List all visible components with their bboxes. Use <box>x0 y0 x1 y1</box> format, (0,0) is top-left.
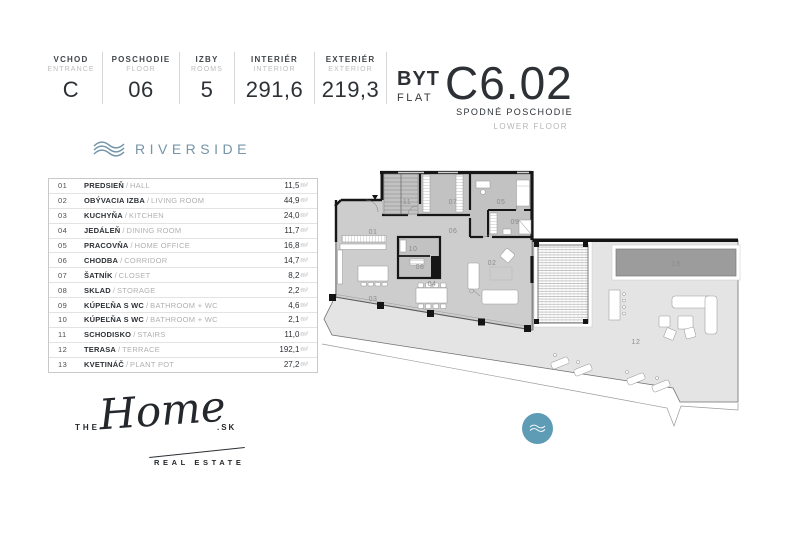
room-name-sk: KUCHYŇA <box>84 211 123 220</box>
info-label: POSCHODIE <box>103 55 179 64</box>
flat-title: BYT FLAT C6.02 <box>397 62 573 104</box>
info-box-entrance: VCHOD ENTRANCE C <box>40 52 103 104</box>
info-value: 219,3 <box>315 77 386 103</box>
table-row: 03KUCHYŇA/KITCHEN24,0m² <box>49 209 317 224</box>
room-number: 07 <box>58 271 84 280</box>
room-name-sk: TERASA <box>84 345 116 354</box>
area-unit: m² <box>300 227 308 234</box>
plan-room-label: 10 <box>409 246 418 253</box>
table-row: 02OBÝVACIA IZBA/LIVING ROOM44,9m² <box>49 194 317 209</box>
area-unit: m² <box>300 212 308 219</box>
room-name-sk: SCHODISKO <box>84 330 131 339</box>
room-number: 09 <box>58 301 84 310</box>
room-name-en: KITCHEN <box>129 211 164 220</box>
area-unit: m² <box>300 257 308 264</box>
room-name-en: BATHROOM + WC <box>150 315 218 324</box>
room-name-en: LIVING ROOM <box>151 196 204 205</box>
floor-plan-drawing: 01 02 03 04 05 06 07 08 09 10 11 12 13 <box>320 160 790 430</box>
plan-room-label: 04 <box>428 281 437 288</box>
room-name-sk: JEDÁLEŇ <box>84 226 120 235</box>
flat-floor: SPODNÉ POSCHODIE LOWER FLOOR <box>396 107 573 131</box>
separator: / <box>113 286 115 295</box>
plan-room-label: 12 <box>632 339 641 346</box>
room-name-en: STAIRS <box>137 330 165 339</box>
flat-number: C6.02 <box>445 62 573 104</box>
room-name-en: CLOSET <box>119 271 151 280</box>
room-area: 4,6 <box>288 301 299 310</box>
info-value: C <box>40 77 102 103</box>
area-unit: m² <box>300 331 308 338</box>
room-area: 2,2 <box>288 286 299 295</box>
separator: / <box>120 256 122 265</box>
brand-name: RIVERSIDE <box>135 141 251 157</box>
room-area: 16,8 <box>284 241 300 250</box>
room-name-en: BATHROOM + WC <box>150 301 218 310</box>
plan-room-label: 01 <box>369 229 378 236</box>
info-sublabel: INTERIOR <box>235 66 314 73</box>
flat-type-sk: BYT <box>397 69 440 89</box>
room-name-en: CORRIDOR <box>124 256 167 265</box>
plan-room-label: 11 <box>403 199 411 206</box>
room-name-sk: ŠATNÍK <box>84 271 113 280</box>
separator: / <box>131 241 133 250</box>
brand-riverside: RIVERSIDE <box>92 139 251 159</box>
room-name-en: DINING ROOM <box>127 226 182 235</box>
plan-top-edge-wall <box>532 239 738 243</box>
plan-pergola <box>534 241 592 327</box>
table-row: 01PREDSIEŇ/HALL11,5m² <box>49 179 317 194</box>
room-number: 13 <box>58 360 84 369</box>
separator: / <box>146 315 148 324</box>
table-row: 06CHODBA/CORRIDOR14,7m² <box>49 253 317 268</box>
info-value: 5 <box>180 77 234 103</box>
room-name-sk: CHODBA <box>84 256 118 265</box>
room-name-sk: KÚPEĽŇA S WC <box>84 315 144 324</box>
room-area: 44,9 <box>284 196 300 205</box>
agency-logo-suffix: .SK <box>217 423 236 432</box>
separator: / <box>126 181 128 190</box>
separator: / <box>125 211 127 220</box>
area-unit: m² <box>300 182 308 189</box>
flat-type: BYT FLAT <box>397 69 440 104</box>
room-name-sk: KÚPEĽŇA S WC <box>84 301 144 310</box>
room-number: 10 <box>58 315 84 324</box>
info-sublabel: FLOOR <box>103 66 179 73</box>
info-label: VCHOD <box>40 55 102 64</box>
room-area: 11,7 <box>284 226 299 235</box>
agency-logo-word: Home <box>97 382 227 440</box>
area-unit: m² <box>300 346 308 353</box>
room-number: 08 <box>58 286 84 295</box>
room-number: 03 <box>58 211 84 220</box>
info-sublabel: ENTRANCE <box>40 66 102 73</box>
room-name-en: TERRACE <box>122 345 160 354</box>
table-row: 10KÚPEĽŇA S WC/BATHROOM + WC2,1m² <box>49 313 317 328</box>
area-unit: m² <box>300 316 308 323</box>
floor-plan-sheet: VCHOD ENTRANCE C POSCHODIE FLOOR 06 IZBY… <box>0 0 800 538</box>
agency-logo-divider <box>149 447 245 458</box>
info-sublabel: ROOMS <box>180 66 234 73</box>
table-row: 07ŠATNÍK/CLOSET8,2m² <box>49 268 317 283</box>
info-label: INTERIÉR <box>235 55 314 64</box>
room-name-en: STORAGE <box>117 286 156 295</box>
area-unit: m² <box>300 361 308 368</box>
agency-logo: THE Home .SK REAL ESTATE <box>55 392 250 480</box>
info-box-exterior: EXTERIÉR EXTERIOR 219,3 <box>315 52 387 104</box>
flat-type-en: FLAT <box>397 92 440 104</box>
plan-room-label: 13 <box>672 261 681 268</box>
room-name-sk: PREDSIEŇ <box>84 181 124 190</box>
area-unit: m² <box>300 272 308 279</box>
room-area: 11,5 <box>284 181 299 190</box>
info-strip: VCHOD ENTRANCE C POSCHODIE FLOOR 06 IZBY… <box>40 52 387 104</box>
info-sublabel: EXTERIOR <box>315 66 386 73</box>
plan-room-label: 07 <box>449 199 458 206</box>
room-number: 12 <box>58 345 84 354</box>
info-box-interior: INTERIÉR INTERIOR 291,6 <box>235 52 315 104</box>
room-name-en: HOME OFFICE <box>135 241 190 250</box>
room-name-sk: KVETINÁČ <box>84 360 124 369</box>
plan-room-label: 05 <box>497 199 506 206</box>
room-area: 8,2 <box>288 271 299 280</box>
table-row: 11SCHODISKO/STAIRS11,0m² <box>49 328 317 343</box>
separator: / <box>146 301 148 310</box>
agency-logo-tagline: REAL ESTATE <box>154 458 244 467</box>
separator: / <box>133 330 135 339</box>
separator: / <box>122 226 124 235</box>
separator: / <box>115 271 117 280</box>
area-unit: m² <box>300 287 308 294</box>
separator: / <box>118 345 120 354</box>
room-area: 24,0 <box>284 211 300 220</box>
info-value: 291,6 <box>235 77 314 103</box>
plan-room-label: 06 <box>449 228 458 235</box>
plan-room-label: 03 <box>369 296 378 303</box>
separator: / <box>147 196 149 205</box>
room-number: 01 <box>58 181 84 190</box>
room-area: 2,1 <box>288 315 299 324</box>
room-name-sk: SKLAD <box>84 286 111 295</box>
table-row: 05PRACOVŇA/HOME OFFICE16,8m² <box>49 239 317 254</box>
info-box-floor: POSCHODIE FLOOR 06 <box>103 52 180 104</box>
agency-logo-prefix: THE <box>75 423 100 432</box>
room-name-en: HALL <box>130 181 150 190</box>
room-number: 11 <box>58 330 84 339</box>
info-label: EXTERIÉR <box>315 55 386 64</box>
room-legend-table: 01PREDSIEŇ/HALL11,5m² 02OBÝVACIA IZBA/LI… <box>48 178 318 373</box>
riverside-wave-icon <box>92 139 126 159</box>
info-label: IZBY <box>180 55 234 64</box>
area-unit: m² <box>300 242 308 249</box>
room-area: 14,7 <box>284 256 300 265</box>
room-area: 192,1 <box>279 345 299 354</box>
table-row: 04JEDÁLEŇ/DINING ROOM11,7m² <box>49 224 317 239</box>
room-name-sk: PRACOVŇA <box>84 241 129 250</box>
room-number: 04 <box>58 226 84 235</box>
room-name-en: PLANT POT <box>130 360 174 369</box>
info-box-rooms: IZBY ROOMS 5 <box>180 52 235 104</box>
area-unit: m² <box>300 302 308 309</box>
flat-floor-sk: SPODNÉ POSCHODIE <box>396 107 573 117</box>
separator: / <box>126 360 128 369</box>
plan-room-label: 08 <box>416 264 425 271</box>
room-number: 02 <box>58 196 84 205</box>
room-name-sk: OBÝVACIA IZBA <box>84 196 145 205</box>
table-row: 08SKLAD/STORAGE2,2m² <box>49 283 317 298</box>
room-number: 06 <box>58 256 84 265</box>
table-row: 09KÚPEĽŇA S WC/BATHROOM + WC4,6m² <box>49 298 317 313</box>
area-unit: m² <box>300 197 308 204</box>
table-row: 13KVETINÁČ/PLANT POT27,2m² <box>49 358 317 372</box>
room-area: 11,0 <box>284 330 299 339</box>
plan-room-label: 02 <box>488 260 497 267</box>
table-row: 12TERASA/TERRACE192,1m² <box>49 343 317 358</box>
flat-floor-en: LOWER FLOOR <box>396 122 573 131</box>
plan-room-label: 09 <box>511 219 520 226</box>
room-area: 27,2 <box>284 360 300 369</box>
room-number: 05 <box>58 241 84 250</box>
info-value: 06 <box>103 77 179 103</box>
